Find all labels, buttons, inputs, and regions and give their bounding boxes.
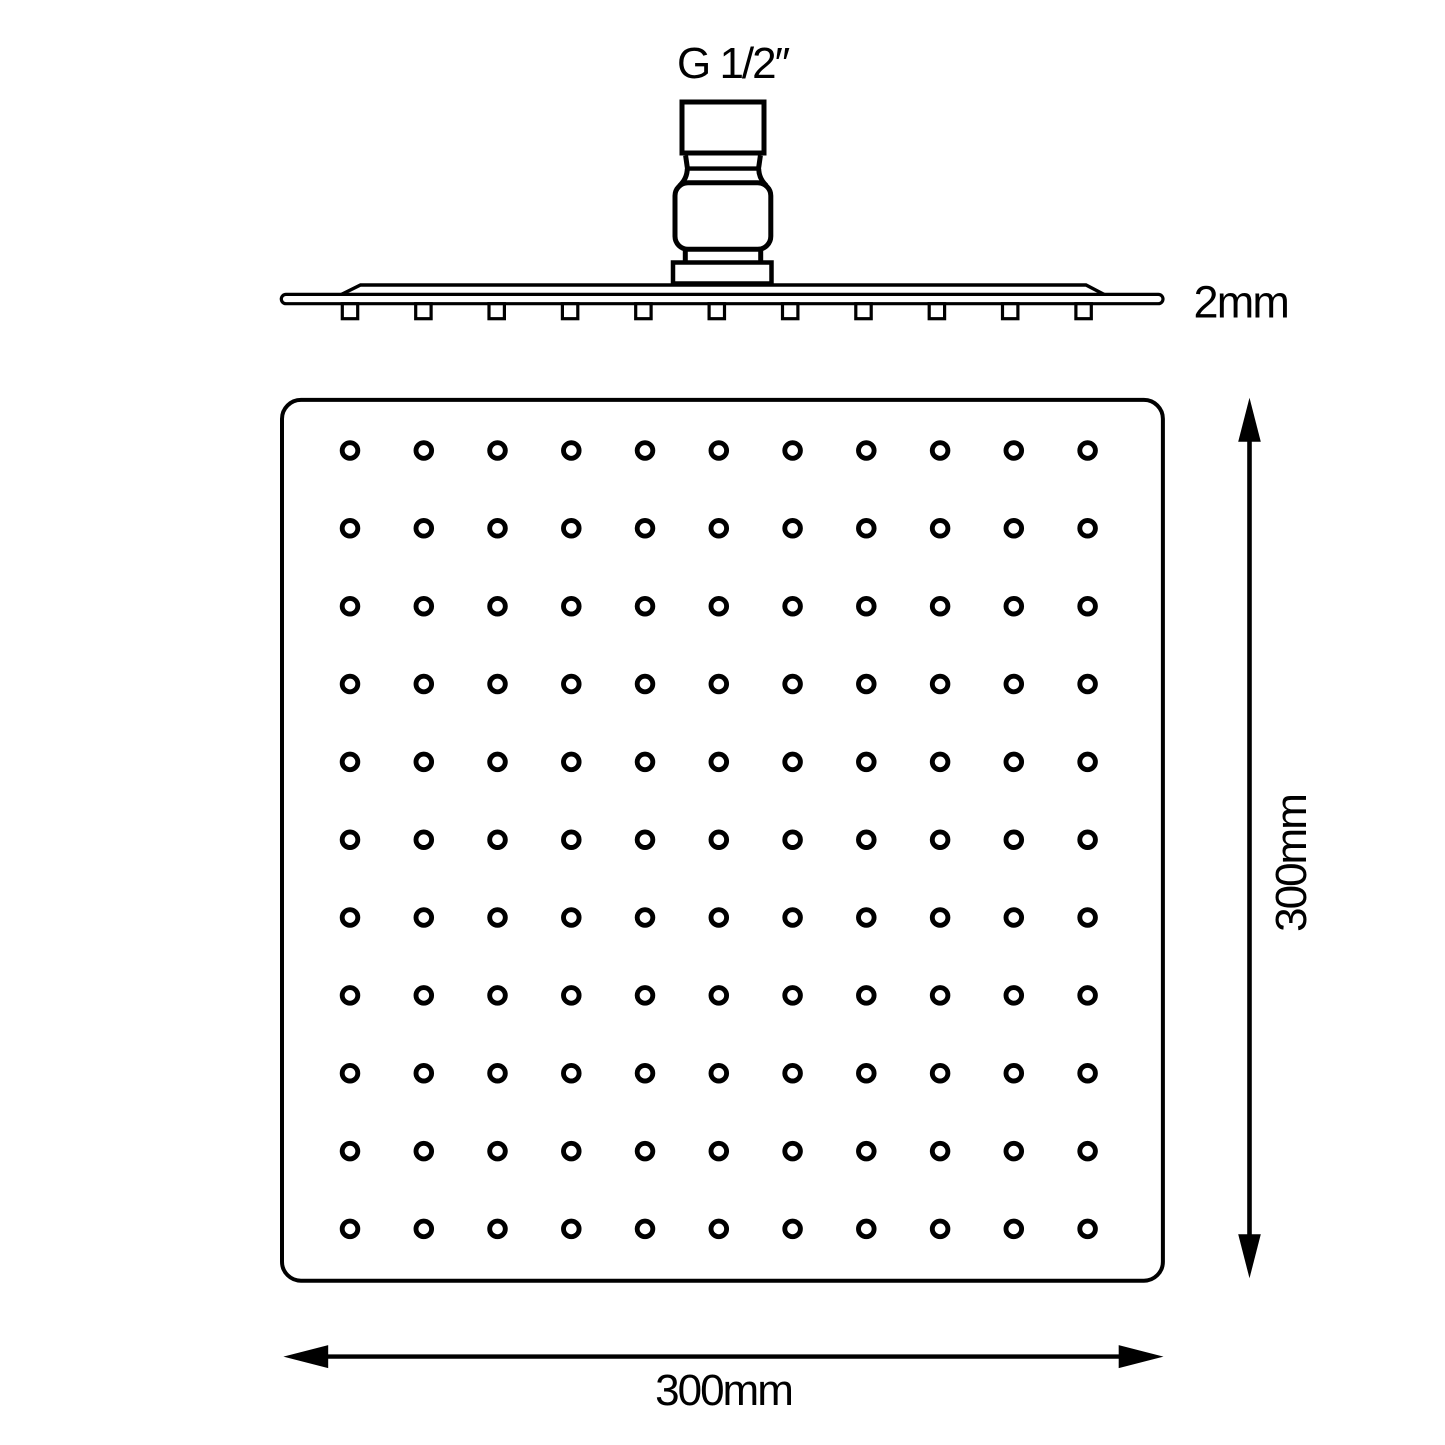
svg-text:G 1/2″: G 1/2″ — [677, 39, 790, 88]
svg-text:2mm: 2mm — [1194, 277, 1289, 328]
svg-text:300mm: 300mm — [1267, 795, 1316, 932]
svg-text:300mm: 300mm — [655, 1366, 792, 1415]
